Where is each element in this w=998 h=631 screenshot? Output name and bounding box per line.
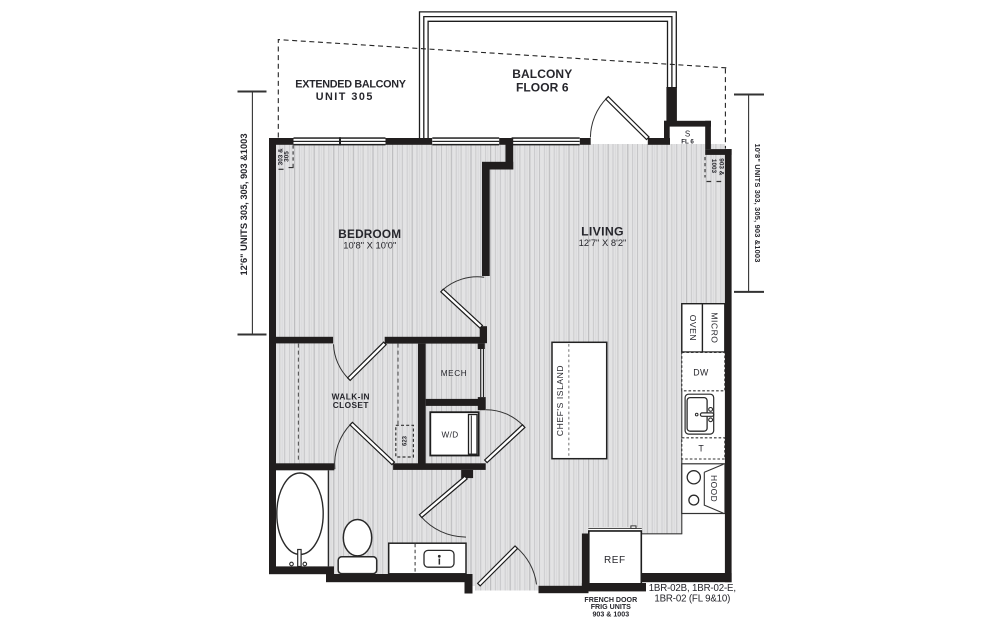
svg-text:903 & 1003: 903 & 1003 [592, 610, 629, 618]
svg-text:FL 6: FL 6 [681, 139, 694, 146]
svg-text:MICRO: MICRO [710, 312, 720, 343]
svg-text:1003: 1003 [710, 159, 717, 174]
svg-text:CHEF'S ISLAND: CHEF'S ISLAND [555, 365, 565, 436]
svg-text:W/D: W/D [441, 431, 458, 440]
svg-text:FLOOR 6: FLOOR 6 [516, 81, 569, 95]
svg-text:UNIT 305: UNIT 305 [316, 91, 374, 103]
svg-text:S: S [685, 130, 690, 139]
svg-text:1BR-02 (FL 9&10): 1BR-02 (FL 9&10) [654, 593, 730, 604]
svg-text:10'8" UNITS 303, 305, 903 &100: 10'8" UNITS 303, 305, 903 &1003 [753, 143, 762, 262]
svg-text:REF: REF [604, 555, 626, 566]
svg-text:305: 305 [283, 151, 290, 162]
svg-text:623: 623 [402, 435, 408, 446]
svg-text:12'7" X 8'2": 12'7" X 8'2" [579, 237, 627, 248]
svg-text:OVEN: OVEN [688, 315, 698, 341]
svg-text:BALCONY: BALCONY [512, 67, 572, 81]
svg-text:903 &: 903 & [718, 158, 725, 175]
svg-text:12'6" UNITS 303, 305, 903 &100: 12'6" UNITS 303, 305, 903 &1003 [239, 133, 249, 275]
svg-text:MECH: MECH [441, 369, 468, 378]
svg-text:CLOSET: CLOSET [333, 400, 369, 410]
svg-text:T: T [698, 444, 704, 454]
svg-text:DW: DW [693, 367, 709, 377]
svg-text:10'8" X 10'0": 10'8" X 10'0" [343, 240, 396, 251]
svg-text:EXTENDED BALCONY: EXTENDED BALCONY [295, 79, 406, 91]
svg-text:HOOD: HOOD [709, 475, 719, 502]
